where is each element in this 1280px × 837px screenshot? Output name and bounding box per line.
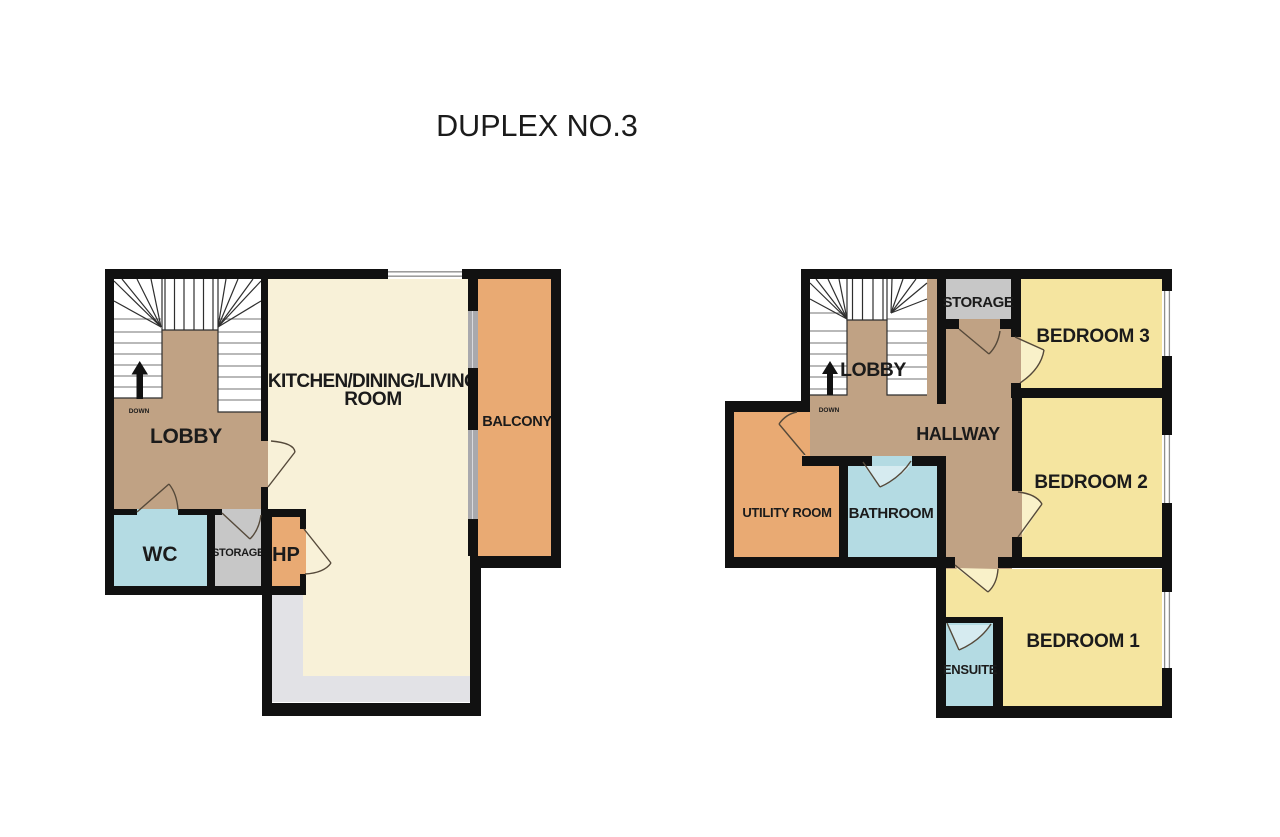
svg-text:ROOM: ROOM (344, 389, 402, 410)
svg-text:ENSUITE: ENSUITE (943, 662, 998, 677)
svg-text:UTILITY ROOM: UTILITY ROOM (742, 505, 831, 520)
svg-text:DOWN: DOWN (819, 407, 840, 414)
svg-text:LOBBY: LOBBY (840, 359, 906, 381)
svg-text:STORAGE: STORAGE (942, 294, 1013, 311)
svg-text:BEDROOM 1: BEDROOM 1 (1026, 631, 1140, 652)
svg-text:LOBBY: LOBBY (150, 425, 222, 448)
svg-text:HALLWAY: HALLWAY (916, 424, 1000, 444)
svg-text:HP: HP (272, 544, 300, 566)
svg-text:WC: WC (143, 543, 178, 566)
svg-text:BALCONY: BALCONY (482, 414, 552, 430)
svg-text:BEDROOM 2: BEDROOM 2 (1034, 472, 1147, 493)
svg-text:DUPLEX NO.3: DUPLEX NO.3 (436, 109, 638, 143)
svg-text:BATHROOM: BATHROOM (849, 505, 934, 522)
svg-text:BEDROOM 3: BEDROOM 3 (1036, 326, 1149, 347)
svg-text:DOWN: DOWN (129, 408, 150, 415)
svg-text:STORAGE: STORAGE (212, 547, 264, 559)
